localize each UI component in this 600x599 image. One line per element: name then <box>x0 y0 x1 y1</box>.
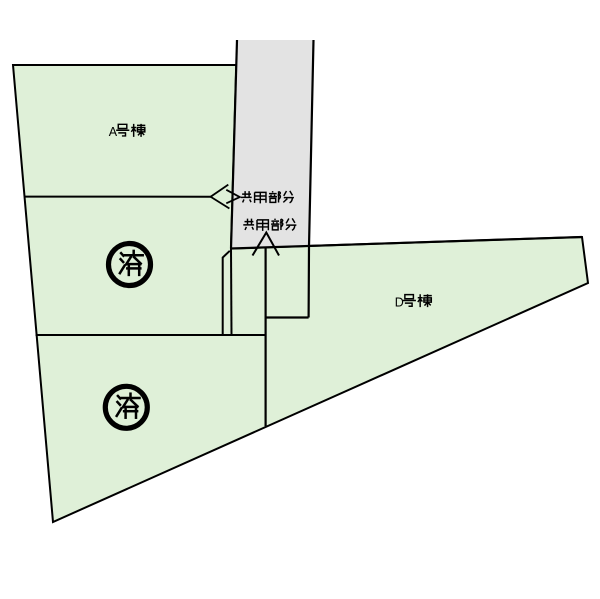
svg-text:A: A <box>109 125 118 139</box>
svg-text:D: D <box>395 295 404 309</box>
